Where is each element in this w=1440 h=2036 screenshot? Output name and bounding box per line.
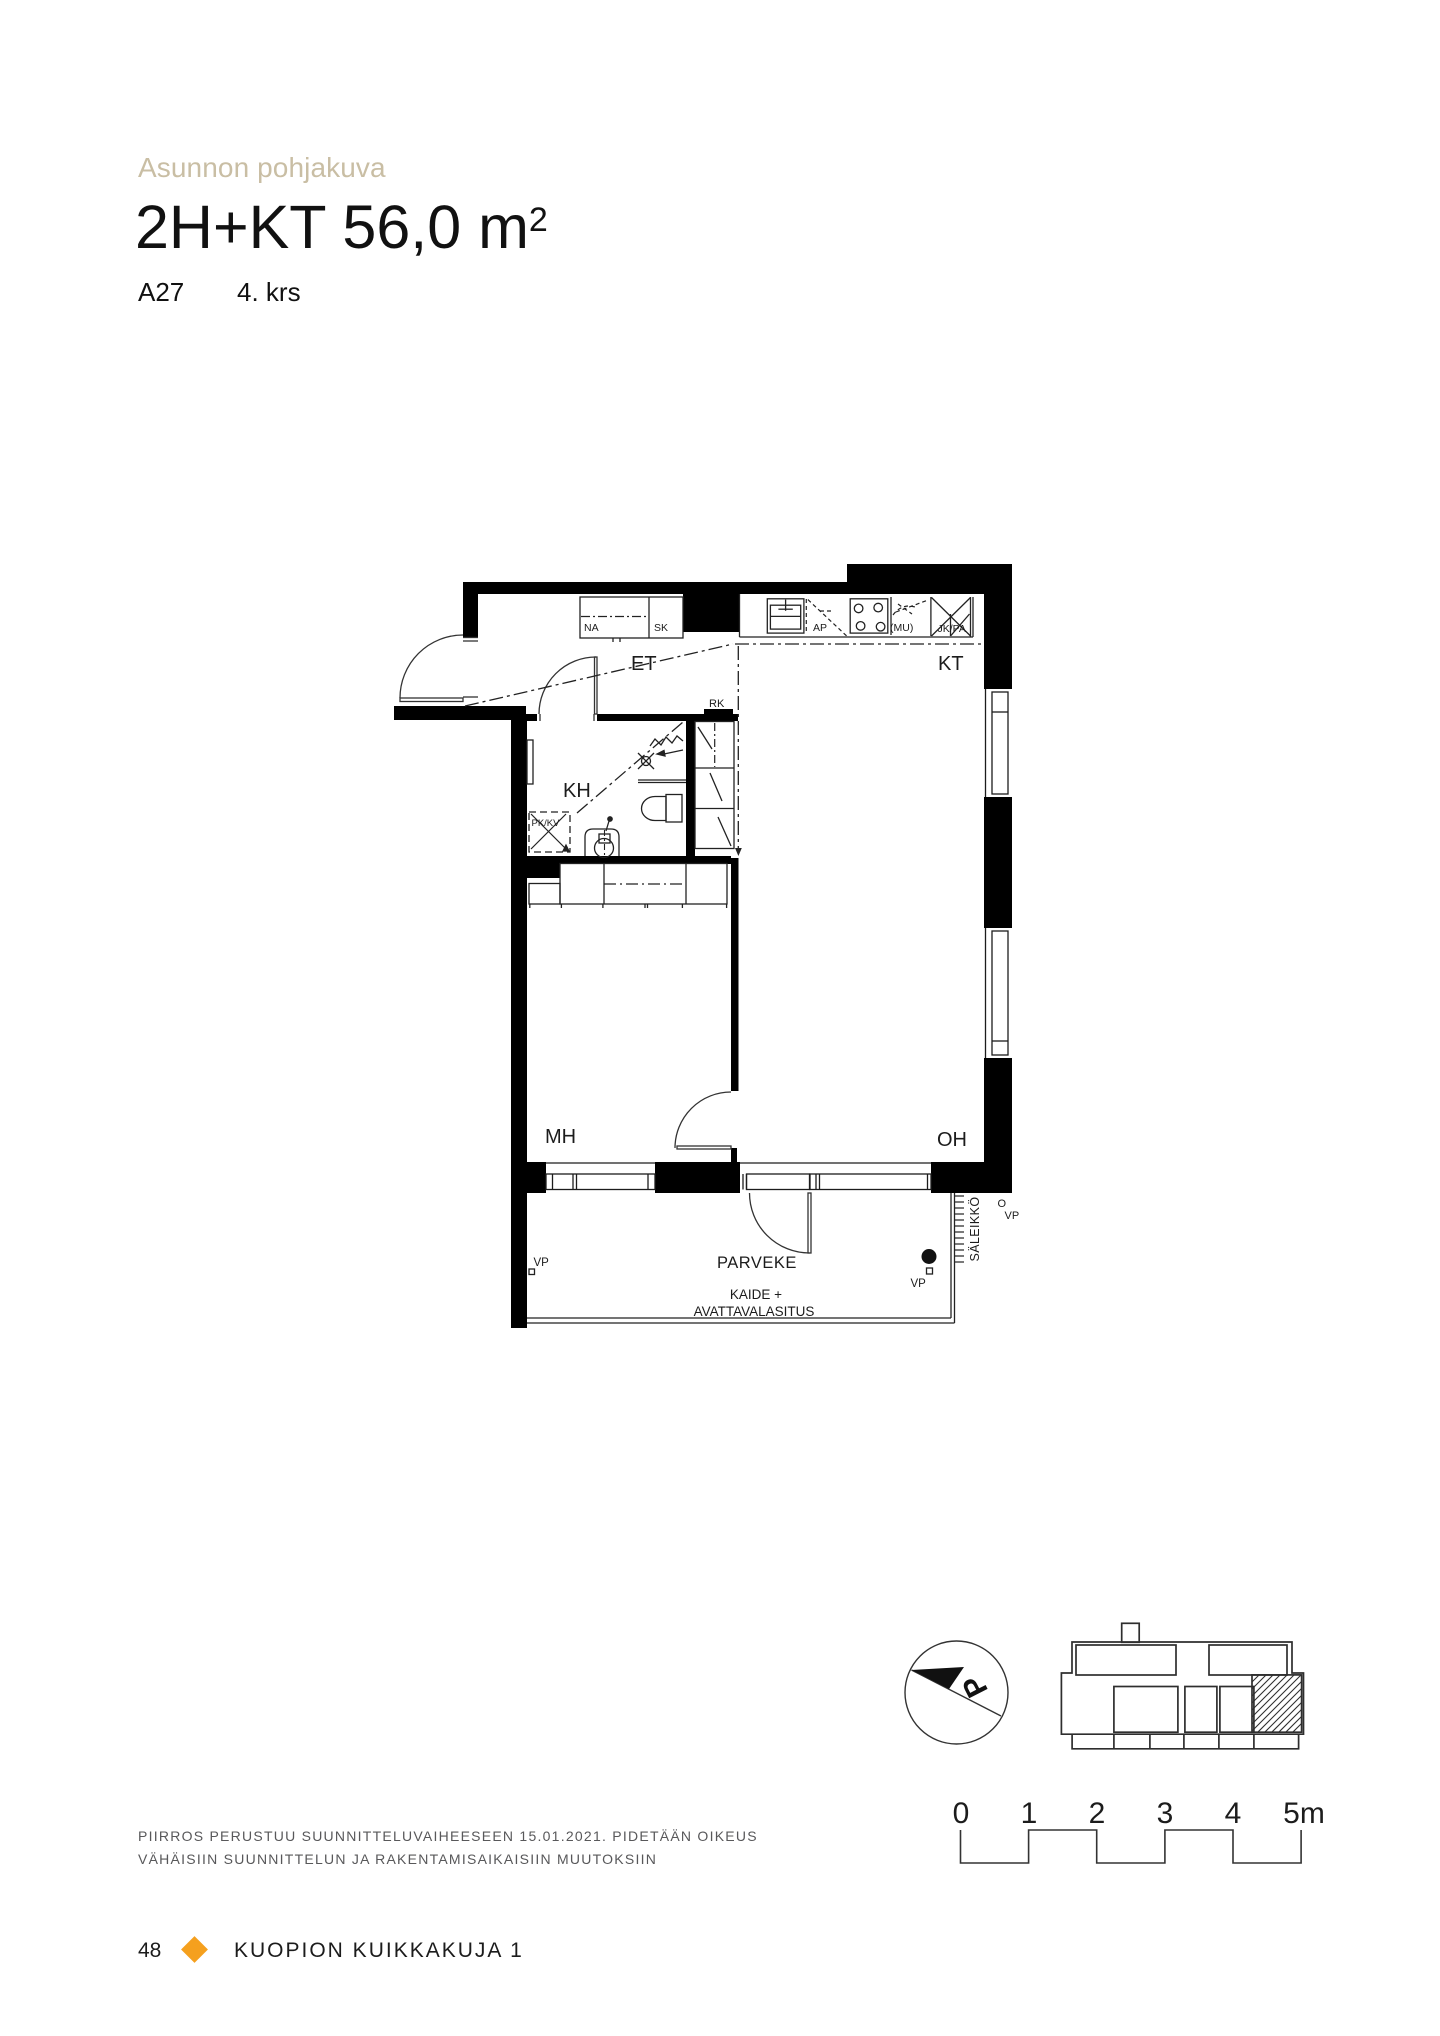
svg-text:2: 2: [1089, 1797, 1106, 1830]
svg-text:PK/KV: PK/KV: [532, 818, 561, 829]
svg-text:OH: OH: [937, 1129, 967, 1151]
svg-text:RK: RK: [709, 698, 725, 710]
svg-text:ET: ET: [631, 653, 657, 675]
svg-text:PARVEKE: PARVEKE: [717, 1254, 797, 1272]
svg-text:JK/PA: JK/PA: [938, 623, 966, 635]
svg-text:VP: VP: [911, 1278, 927, 1290]
svg-text:(MU): (MU): [890, 622, 913, 634]
svg-text:KT: KT: [938, 653, 964, 675]
svg-text:KAIDE +: KAIDE +: [730, 1287, 782, 1302]
svg-text:VP: VP: [1005, 1210, 1020, 1222]
svg-text:VP: VP: [534, 1257, 550, 1269]
svg-text:P: P: [956, 1670, 994, 1703]
svg-text:0: 0: [953, 1797, 970, 1830]
svg-text:3: 3: [1157, 1797, 1174, 1830]
svg-text:AP: AP: [813, 622, 827, 634]
svg-text:5m: 5m: [1283, 1797, 1325, 1830]
svg-text:SÄLEIKKÖ: SÄLEIKKÖ: [968, 1196, 982, 1261]
svg-text:KH: KH: [563, 780, 591, 802]
svg-text:NA: NA: [584, 622, 599, 634]
svg-text:SK: SK: [654, 622, 668, 634]
svg-text:O: O: [998, 1198, 1007, 1210]
svg-text:MH: MH: [545, 1126, 576, 1148]
svg-text:4: 4: [1225, 1797, 1242, 1830]
svg-text:1: 1: [1021, 1797, 1038, 1830]
svg-text:AVATTAVALASITUS: AVATTAVALASITUS: [694, 1304, 815, 1319]
